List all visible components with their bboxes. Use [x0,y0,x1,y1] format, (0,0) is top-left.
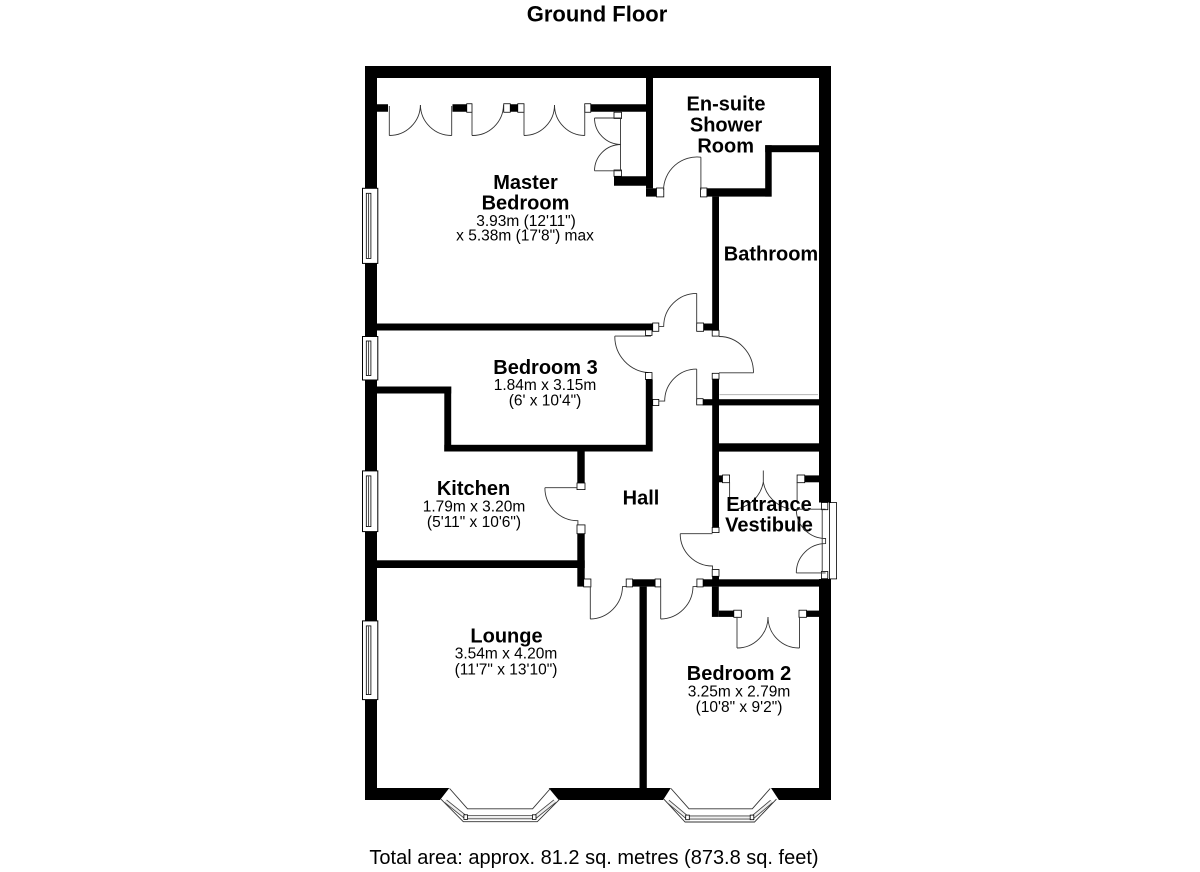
svg-text:(5'11" x 10'6"): (5'11" x 10'6") [427,514,521,531]
svg-text:(6' x 10'4"): (6' x 10'4") [509,393,582,410]
svg-text:1.79m x 3.20m: 1.79m x 3.20m [423,499,526,516]
svg-text:(11'7" x 13'10"): (11'7" x 13'10") [455,662,558,679]
svg-text:Lounge: Lounge [470,625,542,647]
svg-text:Bedroom 3: Bedroom 3 [493,357,597,379]
svg-text:Room: Room [697,136,754,158]
svg-text:Bedroom 2: Bedroom 2 [687,663,791,685]
svg-text:3.54m x 4.20m: 3.54m x 4.20m [455,646,558,663]
svg-text:Kitchen: Kitchen [437,478,510,500]
svg-text:Bedroom: Bedroom [482,193,570,215]
svg-text:x 5.38m (17'8") max: x 5.38m (17'8") max [456,227,594,244]
svg-text:Bathroom: Bathroom [724,243,818,265]
svg-text:Entrance: Entrance [726,494,812,516]
svg-text:Master: Master [493,172,558,194]
svg-text:Vestibule: Vestibule [725,514,813,536]
svg-text:(10'8" x 9'2"): (10'8" x 9'2") [696,699,783,716]
svg-text:Total area: approx. 81.2 sq. m: Total area: approx. 81.2 sq. metres (873… [369,847,818,869]
svg-text:Shower: Shower [690,115,762,137]
svg-text:Hall: Hall [623,488,660,510]
svg-text:Ground Floor: Ground Floor [527,2,668,27]
svg-text:En-suite: En-suite [687,93,766,115]
